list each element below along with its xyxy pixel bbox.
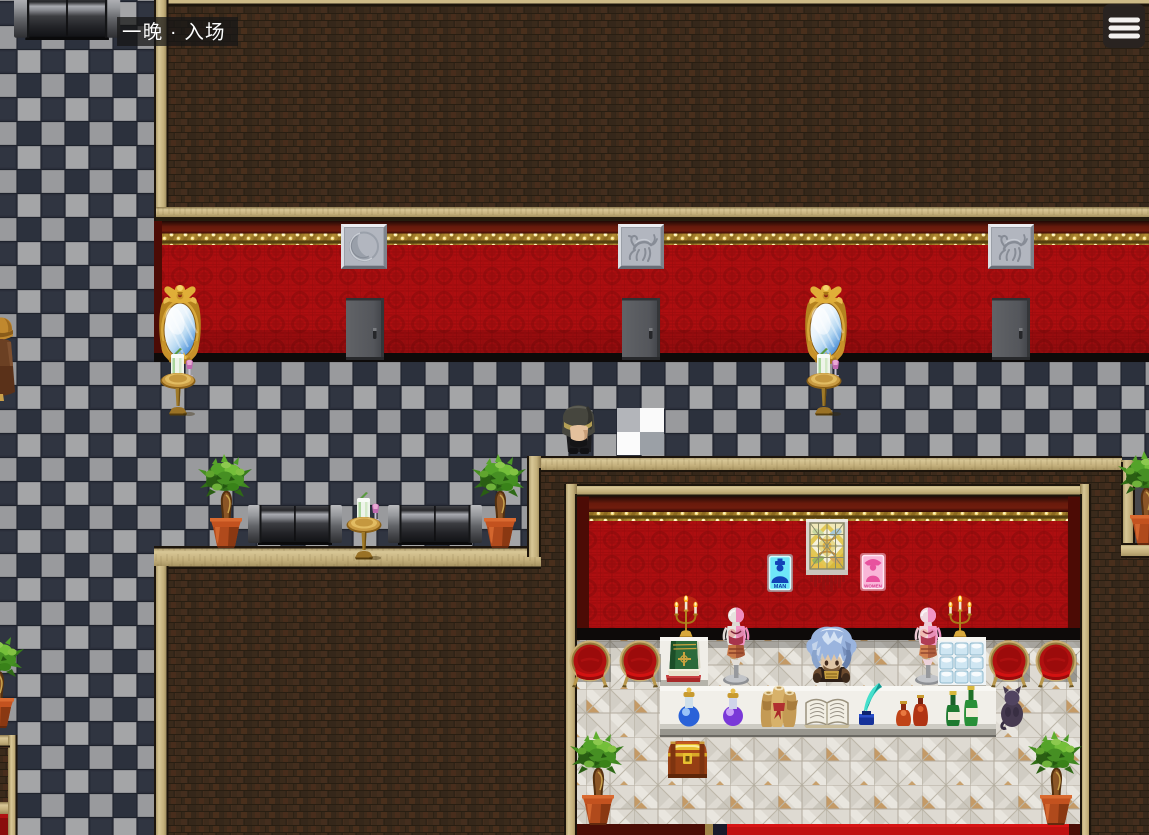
svg-text:WOMEN: WOMEN [864, 584, 882, 589]
svg-text:一晚 · 入场: 一晚 · 入场 [122, 22, 226, 44]
svg-text:MAN: MAN [774, 584, 787, 590]
